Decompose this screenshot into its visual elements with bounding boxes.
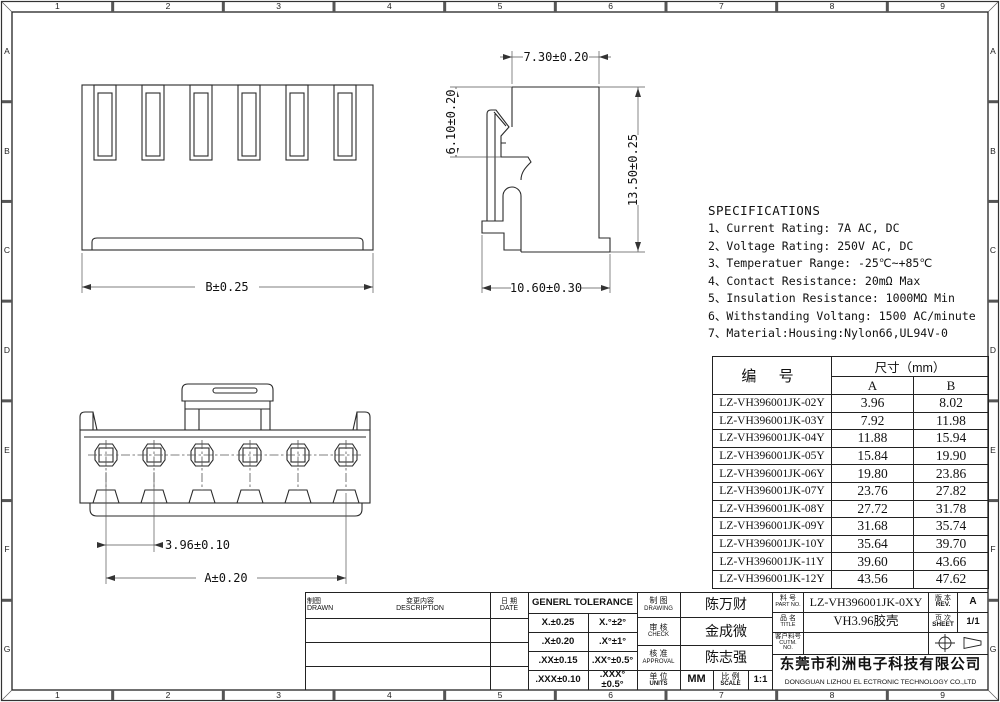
dim-b-cell: 11.98 bbox=[914, 412, 989, 430]
dim-side-left: 6.10±0.20 bbox=[444, 89, 458, 154]
scale-label: 比 例 SCALE bbox=[714, 671, 747, 689]
table-row: LZ-VH396001JK-03Y7.9211.98 bbox=[713, 412, 989, 430]
table-row: LZ-VH396001JK-07Y23.7627.82 bbox=[713, 482, 989, 500]
table-row: LZ-VH396001JK-12Y43.5647.62 bbox=[713, 570, 989, 588]
table-row: LZ-VH396001JK-05Y15.8419.90 bbox=[713, 447, 989, 465]
dim-a-cell: 27.72 bbox=[832, 500, 914, 518]
spec-line: 7、Material:Housing:Nylon66,UL94V-0 bbox=[708, 325, 1000, 343]
parts-table-header-a: A bbox=[832, 377, 914, 395]
dim-b-cell: 35.74 bbox=[914, 518, 989, 536]
dim-side-right: 13.50±0.25 bbox=[626, 134, 640, 206]
tolerance-linear: .XXX±0.10 bbox=[529, 671, 587, 689]
part-number-cell: LZ-VH396001JK-06Y bbox=[713, 465, 832, 483]
spec-line: 4、Contact Resistance: 20mΩ Max bbox=[708, 273, 1000, 291]
dim-b-cell: 27.82 bbox=[914, 482, 989, 500]
units-label: 单 位 UNITS bbox=[638, 671, 679, 689]
part-number-cell: LZ-VH396001JK-03Y bbox=[713, 412, 832, 430]
dim-b-cell: 39.70 bbox=[914, 535, 989, 553]
drawn-header: 制图 DRAWN bbox=[307, 594, 357, 616]
tolerance-linear: .XX±0.15 bbox=[529, 652, 587, 669]
approval-name: 陈志强 bbox=[681, 646, 771, 669]
part-number-cell: LZ-VH396001JK-12Y bbox=[713, 570, 832, 588]
drawing-name: 陈万财 bbox=[681, 593, 771, 616]
dim-a-cell: 23.76 bbox=[832, 482, 914, 500]
dim-b-cell: 43.66 bbox=[914, 553, 989, 571]
sheet-value: 1/1 bbox=[958, 612, 988, 632]
company-name-en: DONGGUAN LIZHOU EL ECTRONIC TECHNOLOGY C… bbox=[773, 676, 988, 689]
drawing-sheet: 112233445566778899AABBCCDDEEFFGG bbox=[0, 0, 1000, 702]
spec-line: 3、Temperatuer Range: -25℃~+85℃ bbox=[708, 255, 1000, 273]
table-row: LZ-VH396001JK-11Y39.6043.66 bbox=[713, 553, 989, 571]
parts-table-body: LZ-VH396001JK-02Y3.968.02LZ-VH396001JK-0… bbox=[713, 395, 989, 589]
dim-b-cell: 15.94 bbox=[914, 430, 989, 448]
part-no-label: 料 号 PART NO. bbox=[774, 593, 802, 611]
part-number-cell: LZ-VH396001JK-04Y bbox=[713, 430, 832, 448]
dim-front-width: B±0.25 bbox=[205, 280, 248, 294]
dim-a-cell: 15.84 bbox=[832, 447, 914, 465]
dim-a-cell: 7.92 bbox=[832, 412, 914, 430]
sheet-label: 页 次 SHEET bbox=[929, 613, 957, 631]
specifications-title: SPECIFICATIONS bbox=[708, 203, 1000, 218]
dim-b-cell: 8.02 bbox=[914, 395, 989, 413]
side-view bbox=[482, 87, 610, 252]
tolerance-angular: .XX°±0.5° bbox=[589, 652, 636, 669]
dim-side-bottom: 10.60±0.30 bbox=[510, 281, 582, 295]
part-number-cell: LZ-VH396001JK-05Y bbox=[713, 447, 832, 465]
spec-line: 6、Withstanding Voltang: 1500 AC/minute bbox=[708, 308, 1000, 326]
part-number-cell: LZ-VH396001JK-02Y bbox=[713, 395, 832, 413]
part-number-cell: LZ-VH396001JK-11Y bbox=[713, 553, 832, 571]
part-number-cell: LZ-VH396001JK-07Y bbox=[713, 482, 832, 500]
table-row: LZ-VH396001JK-08Y27.7231.78 bbox=[713, 500, 989, 518]
part-number-cell: LZ-VH396001JK-10Y bbox=[713, 535, 832, 553]
dim-a-cell: 31.68 bbox=[832, 518, 914, 536]
dim-b-cell: 31.78 bbox=[914, 500, 989, 518]
dim-overall-a: A±0.20 bbox=[204, 571, 247, 585]
table-row: LZ-VH396001JK-09Y31.6835.74 bbox=[713, 518, 989, 536]
company-name-cn: 东莞市利洲电子科技有限公司 bbox=[773, 654, 988, 677]
spec-line: 5、Insulation Resistance: 1000MΩ Min bbox=[708, 290, 1000, 308]
date-header: 日 期 DATE bbox=[491, 594, 527, 616]
dimension-arrows bbox=[82, 54, 641, 581]
units-value: MM bbox=[681, 671, 712, 689]
spec-line: 2、Voltage Rating: 250V AC, DC bbox=[708, 238, 1000, 256]
tolerance-title: GENERL TOLERANCE bbox=[529, 594, 636, 612]
check-name: 金成微 bbox=[681, 618, 771, 644]
drawing-label: 制 图 DRAWING bbox=[638, 593, 679, 616]
tolerance-linear: X.±0.25 bbox=[529, 614, 587, 631]
table-row: LZ-VH396001JK-10Y35.6439.70 bbox=[713, 535, 989, 553]
dim-a-cell: 39.60 bbox=[832, 553, 914, 571]
dimension-lines bbox=[82, 51, 645, 584]
parts-table-header-b: B bbox=[914, 377, 989, 395]
tolerance-linear: .X±0.20 bbox=[529, 633, 587, 650]
dim-pitch: 3.96±0.10 bbox=[165, 538, 230, 552]
rev-value: A bbox=[958, 592, 988, 612]
dim-a-cell: 43.56 bbox=[832, 570, 914, 588]
specifications-block: SPECIFICATIONS 1、Current Rating: 7A AC, … bbox=[708, 203, 1000, 343]
scale-value: 1:1 bbox=[749, 671, 772, 689]
description-header: 变更内容 DESCRIPTION bbox=[360, 594, 480, 616]
table-row: LZ-VH396001JK-06Y19.8023.86 bbox=[713, 465, 989, 483]
customer-label: 客户料号 CUTM. NO. bbox=[774, 633, 802, 653]
rev-label: 版 本 REV. bbox=[929, 593, 957, 611]
part-number-cell: LZ-VH396001JK-08Y bbox=[713, 500, 832, 518]
dim-a-cell: 3.96 bbox=[832, 395, 914, 413]
dim-b-cell: 23.86 bbox=[914, 465, 989, 483]
spec-line: 1、Current Rating: 7A AC, DC bbox=[708, 220, 1000, 238]
parts-table: 编 号 尺寸（mm） A B LZ-VH396001JK-02Y3.968.02… bbox=[712, 356, 989, 589]
title-value: VH3.96胶壳 bbox=[804, 612, 928, 632]
dim-a-cell: 19.80 bbox=[832, 465, 914, 483]
title-label: 品 名 TITLE bbox=[774, 613, 802, 631]
tolerance-angular: .X°±1° bbox=[589, 633, 636, 650]
part-number-cell: LZ-VH396001JK-09Y bbox=[713, 518, 832, 536]
table-row: LZ-VH396001JK-02Y3.968.02 bbox=[713, 395, 989, 413]
front-view bbox=[82, 85, 373, 250]
parts-table-header-part: 编 号 bbox=[713, 357, 832, 395]
table-row: LZ-VH396001JK-04Y11.8815.94 bbox=[713, 430, 989, 448]
dim-side-top: 7.30±0.20 bbox=[523, 50, 588, 64]
dim-a-cell: 11.88 bbox=[832, 430, 914, 448]
projection-symbol-icon bbox=[934, 634, 984, 652]
dim-b-cell: 47.62 bbox=[914, 570, 989, 588]
dim-b-cell: 19.90 bbox=[914, 447, 989, 465]
check-label: 审 核 CHECK bbox=[638, 618, 679, 644]
bottom-view bbox=[80, 384, 370, 516]
dim-a-cell: 35.64 bbox=[832, 535, 914, 553]
centerlines bbox=[88, 440, 362, 490]
tolerance-angular: X.°±2° bbox=[589, 614, 636, 631]
approval-label: 核 准 APPROVAL bbox=[638, 646, 679, 669]
tolerance-angular: .XXX°±0.5° bbox=[589, 671, 636, 689]
part-no-value: LZ-VH396001JK-0XY bbox=[804, 592, 928, 612]
parts-table-header-dim: 尺寸（mm） bbox=[832, 357, 989, 377]
